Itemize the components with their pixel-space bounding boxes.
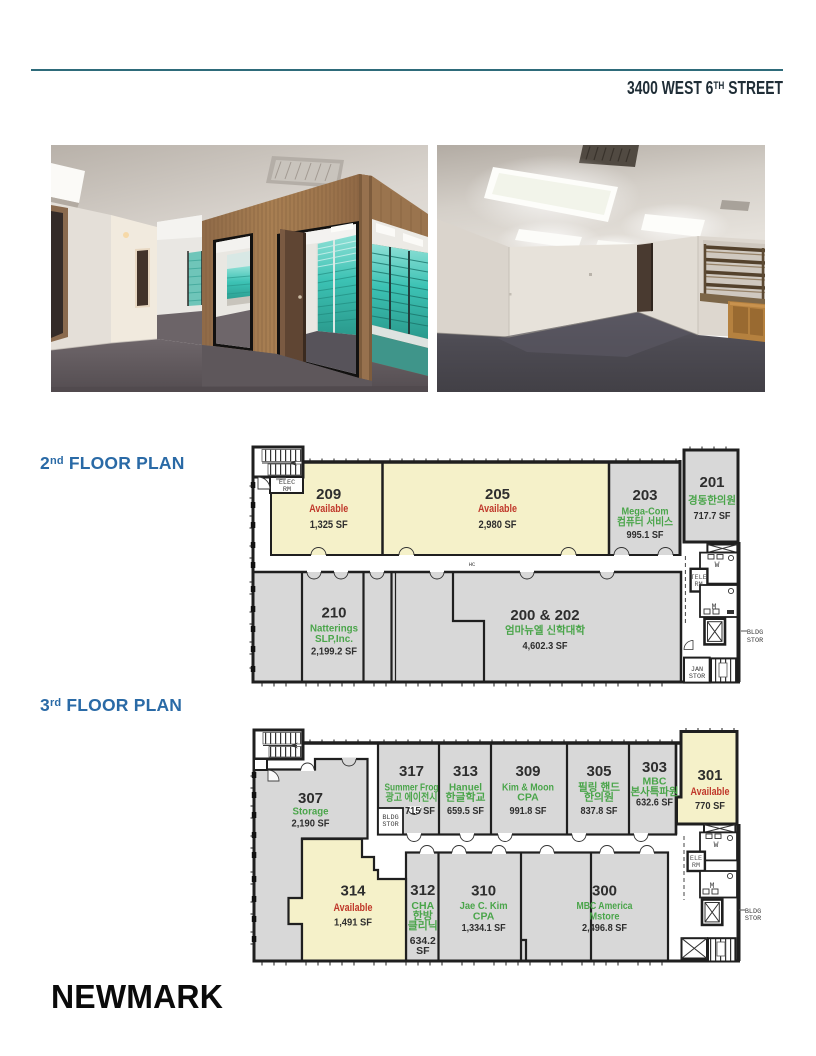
svg-text:엄마뉴엘 신학대학: 엄마뉴엘 신학대학 bbox=[505, 624, 585, 637]
svg-text:STOR: STOR bbox=[382, 821, 398, 829]
svg-text:2,199.2 SF: 2,199.2 SF bbox=[311, 646, 358, 658]
svg-text:M: M bbox=[710, 882, 715, 891]
svg-text:SLP,Inc.: SLP,Inc. bbox=[315, 633, 353, 645]
svg-text:837.8 SF: 837.8 SF bbox=[581, 805, 618, 817]
svg-text:RM: RM bbox=[692, 862, 700, 870]
svg-text:경동한의원: 경동한의원 bbox=[688, 494, 736, 507]
svg-text:컴퓨터 서비스: 컴퓨터 서비스 bbox=[617, 515, 673, 528]
svg-text:한글학교: 한글학교 bbox=[446, 791, 486, 804]
svg-text:991.8 SF: 991.8 SF bbox=[510, 805, 547, 817]
svg-text:210: 210 bbox=[321, 605, 346, 622]
svg-text:STOR: STOR bbox=[689, 673, 705, 681]
svg-text:203: 203 bbox=[632, 487, 657, 504]
svg-text:314: 314 bbox=[340, 883, 366, 900]
svg-text:2,980 SF: 2,980 SF bbox=[479, 519, 517, 531]
svg-text:STOR: STOR bbox=[747, 637, 763, 645]
svg-text:313: 313 bbox=[453, 763, 478, 780]
svg-text:HC: HC bbox=[469, 561, 476, 568]
svg-text:RM: RM bbox=[695, 581, 703, 589]
svg-text:317: 317 bbox=[399, 763, 424, 780]
svg-text:300: 300 bbox=[592, 883, 617, 900]
svg-text:W: W bbox=[714, 841, 719, 850]
svg-text:201: 201 bbox=[699, 474, 724, 491]
svg-text:1,334.1 SF: 1,334.1 SF bbox=[462, 922, 506, 934]
svg-text:Mstore: Mstore bbox=[590, 911, 620, 923]
svg-text:CPA: CPA bbox=[517, 792, 539, 804]
svg-text:W: W bbox=[715, 561, 720, 570]
svg-text:Available: Available bbox=[478, 503, 517, 515]
svg-text:2,190 SF: 2,190 SF bbox=[292, 818, 331, 830]
svg-text:770 SF: 770 SF bbox=[695, 800, 726, 812]
svg-text:209: 209 bbox=[316, 486, 341, 503]
svg-text:RM: RM bbox=[283, 486, 291, 494]
svg-text:CPA: CPA bbox=[473, 911, 495, 923]
svg-text:Available: Available bbox=[334, 902, 373, 914]
svg-text:M: M bbox=[712, 603, 717, 612]
svg-text:659.5 SF: 659.5 SF bbox=[447, 805, 484, 817]
svg-text:STOR: STOR bbox=[745, 915, 761, 923]
svg-text:205: 205 bbox=[485, 486, 510, 503]
svg-text:310: 310 bbox=[471, 883, 496, 900]
svg-text:312: 312 bbox=[410, 882, 435, 899]
svg-text:한의원: 한의원 bbox=[584, 791, 614, 804]
svg-text:Available: Available bbox=[691, 786, 730, 798]
svg-text:1,325 SF: 1,325 SF bbox=[310, 519, 348, 531]
svg-text:307: 307 bbox=[298, 790, 323, 807]
svg-text:2,496.8 SF: 2,496.8 SF bbox=[582, 922, 628, 934]
svg-text:632.6 SF: 632.6 SF bbox=[636, 797, 673, 809]
svg-text:BLDG: BLDG bbox=[747, 629, 763, 637]
svg-text:301: 301 bbox=[697, 767, 722, 784]
svg-text:SF: SF bbox=[416, 945, 430, 957]
svg-text:4,602.3 SF: 4,602.3 SF bbox=[523, 640, 569, 652]
svg-text:305: 305 bbox=[586, 763, 611, 780]
svg-text:1,491 SF: 1,491 SF bbox=[334, 917, 373, 929]
svg-text:995.1 SF: 995.1 SF bbox=[627, 529, 664, 541]
svg-text:309: 309 bbox=[515, 763, 540, 780]
svg-text:717.7 SF: 717.7 SF bbox=[694, 510, 731, 522]
svg-text:715 SF: 715 SF bbox=[405, 805, 436, 817]
svg-text:Available: Available bbox=[309, 503, 348, 515]
svg-text:Storage: Storage bbox=[293, 806, 329, 818]
svg-text:광고 에이전시: 광고 에이전시 bbox=[386, 791, 438, 804]
svg-text:200 & 202: 200 & 202 bbox=[510, 607, 579, 624]
svg-text:303: 303 bbox=[642, 759, 667, 776]
svg-text:클리닉: 클리닉 bbox=[408, 919, 438, 932]
